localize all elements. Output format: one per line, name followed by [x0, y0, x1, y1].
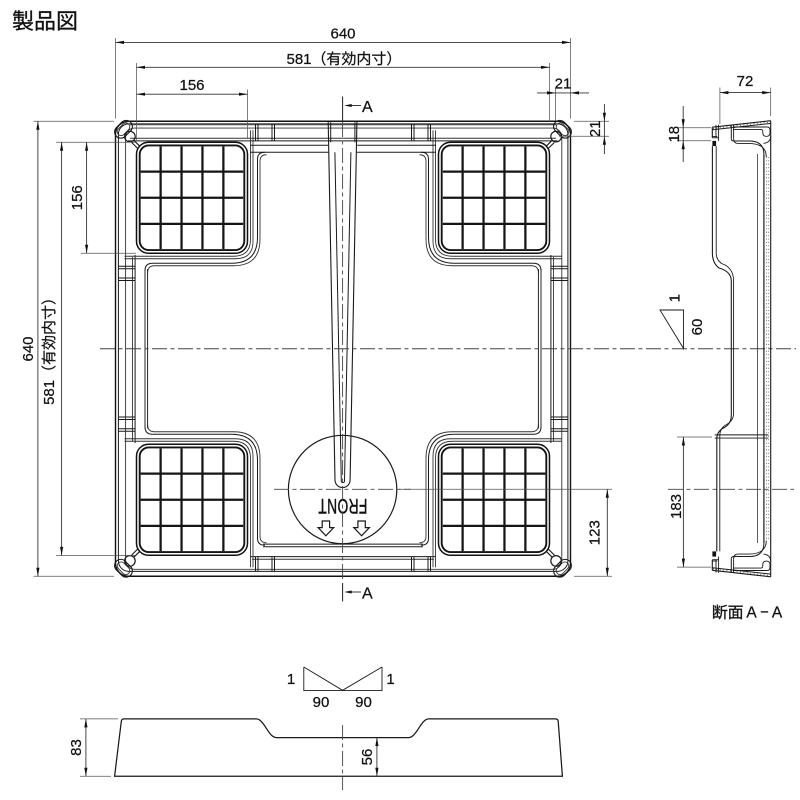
- svg-text:60: 60: [689, 319, 706, 336]
- svg-text:21: 21: [555, 76, 572, 93]
- svg-text:1: 1: [667, 294, 684, 302]
- svg-text:156: 156: [69, 185, 86, 210]
- svg-text:56: 56: [359, 749, 376, 766]
- svg-text:640: 640: [20, 336, 37, 361]
- svg-text:83: 83: [68, 739, 85, 756]
- svg-text:A: A: [362, 586, 373, 603]
- svg-text:156: 156: [179, 77, 204, 94]
- svg-text:90: 90: [355, 694, 372, 711]
- svg-text:72: 72: [737, 73, 754, 90]
- svg-text:90: 90: [313, 694, 330, 711]
- svg-text:A: A: [362, 99, 373, 116]
- svg-text:21: 21: [587, 120, 604, 137]
- svg-text:1: 1: [386, 671, 394, 688]
- svg-text:1: 1: [287, 671, 295, 688]
- svg-text:A: A: [772, 605, 783, 622]
- svg-text:A: A: [746, 605, 757, 622]
- svg-text:581: 581: [41, 380, 58, 405]
- svg-text:581: 581: [286, 51, 311, 68]
- svg-text:183: 183: [668, 494, 685, 519]
- svg-text:18: 18: [666, 126, 683, 143]
- svg-text:123: 123: [586, 520, 603, 545]
- svg-text:640: 640: [330, 26, 355, 43]
